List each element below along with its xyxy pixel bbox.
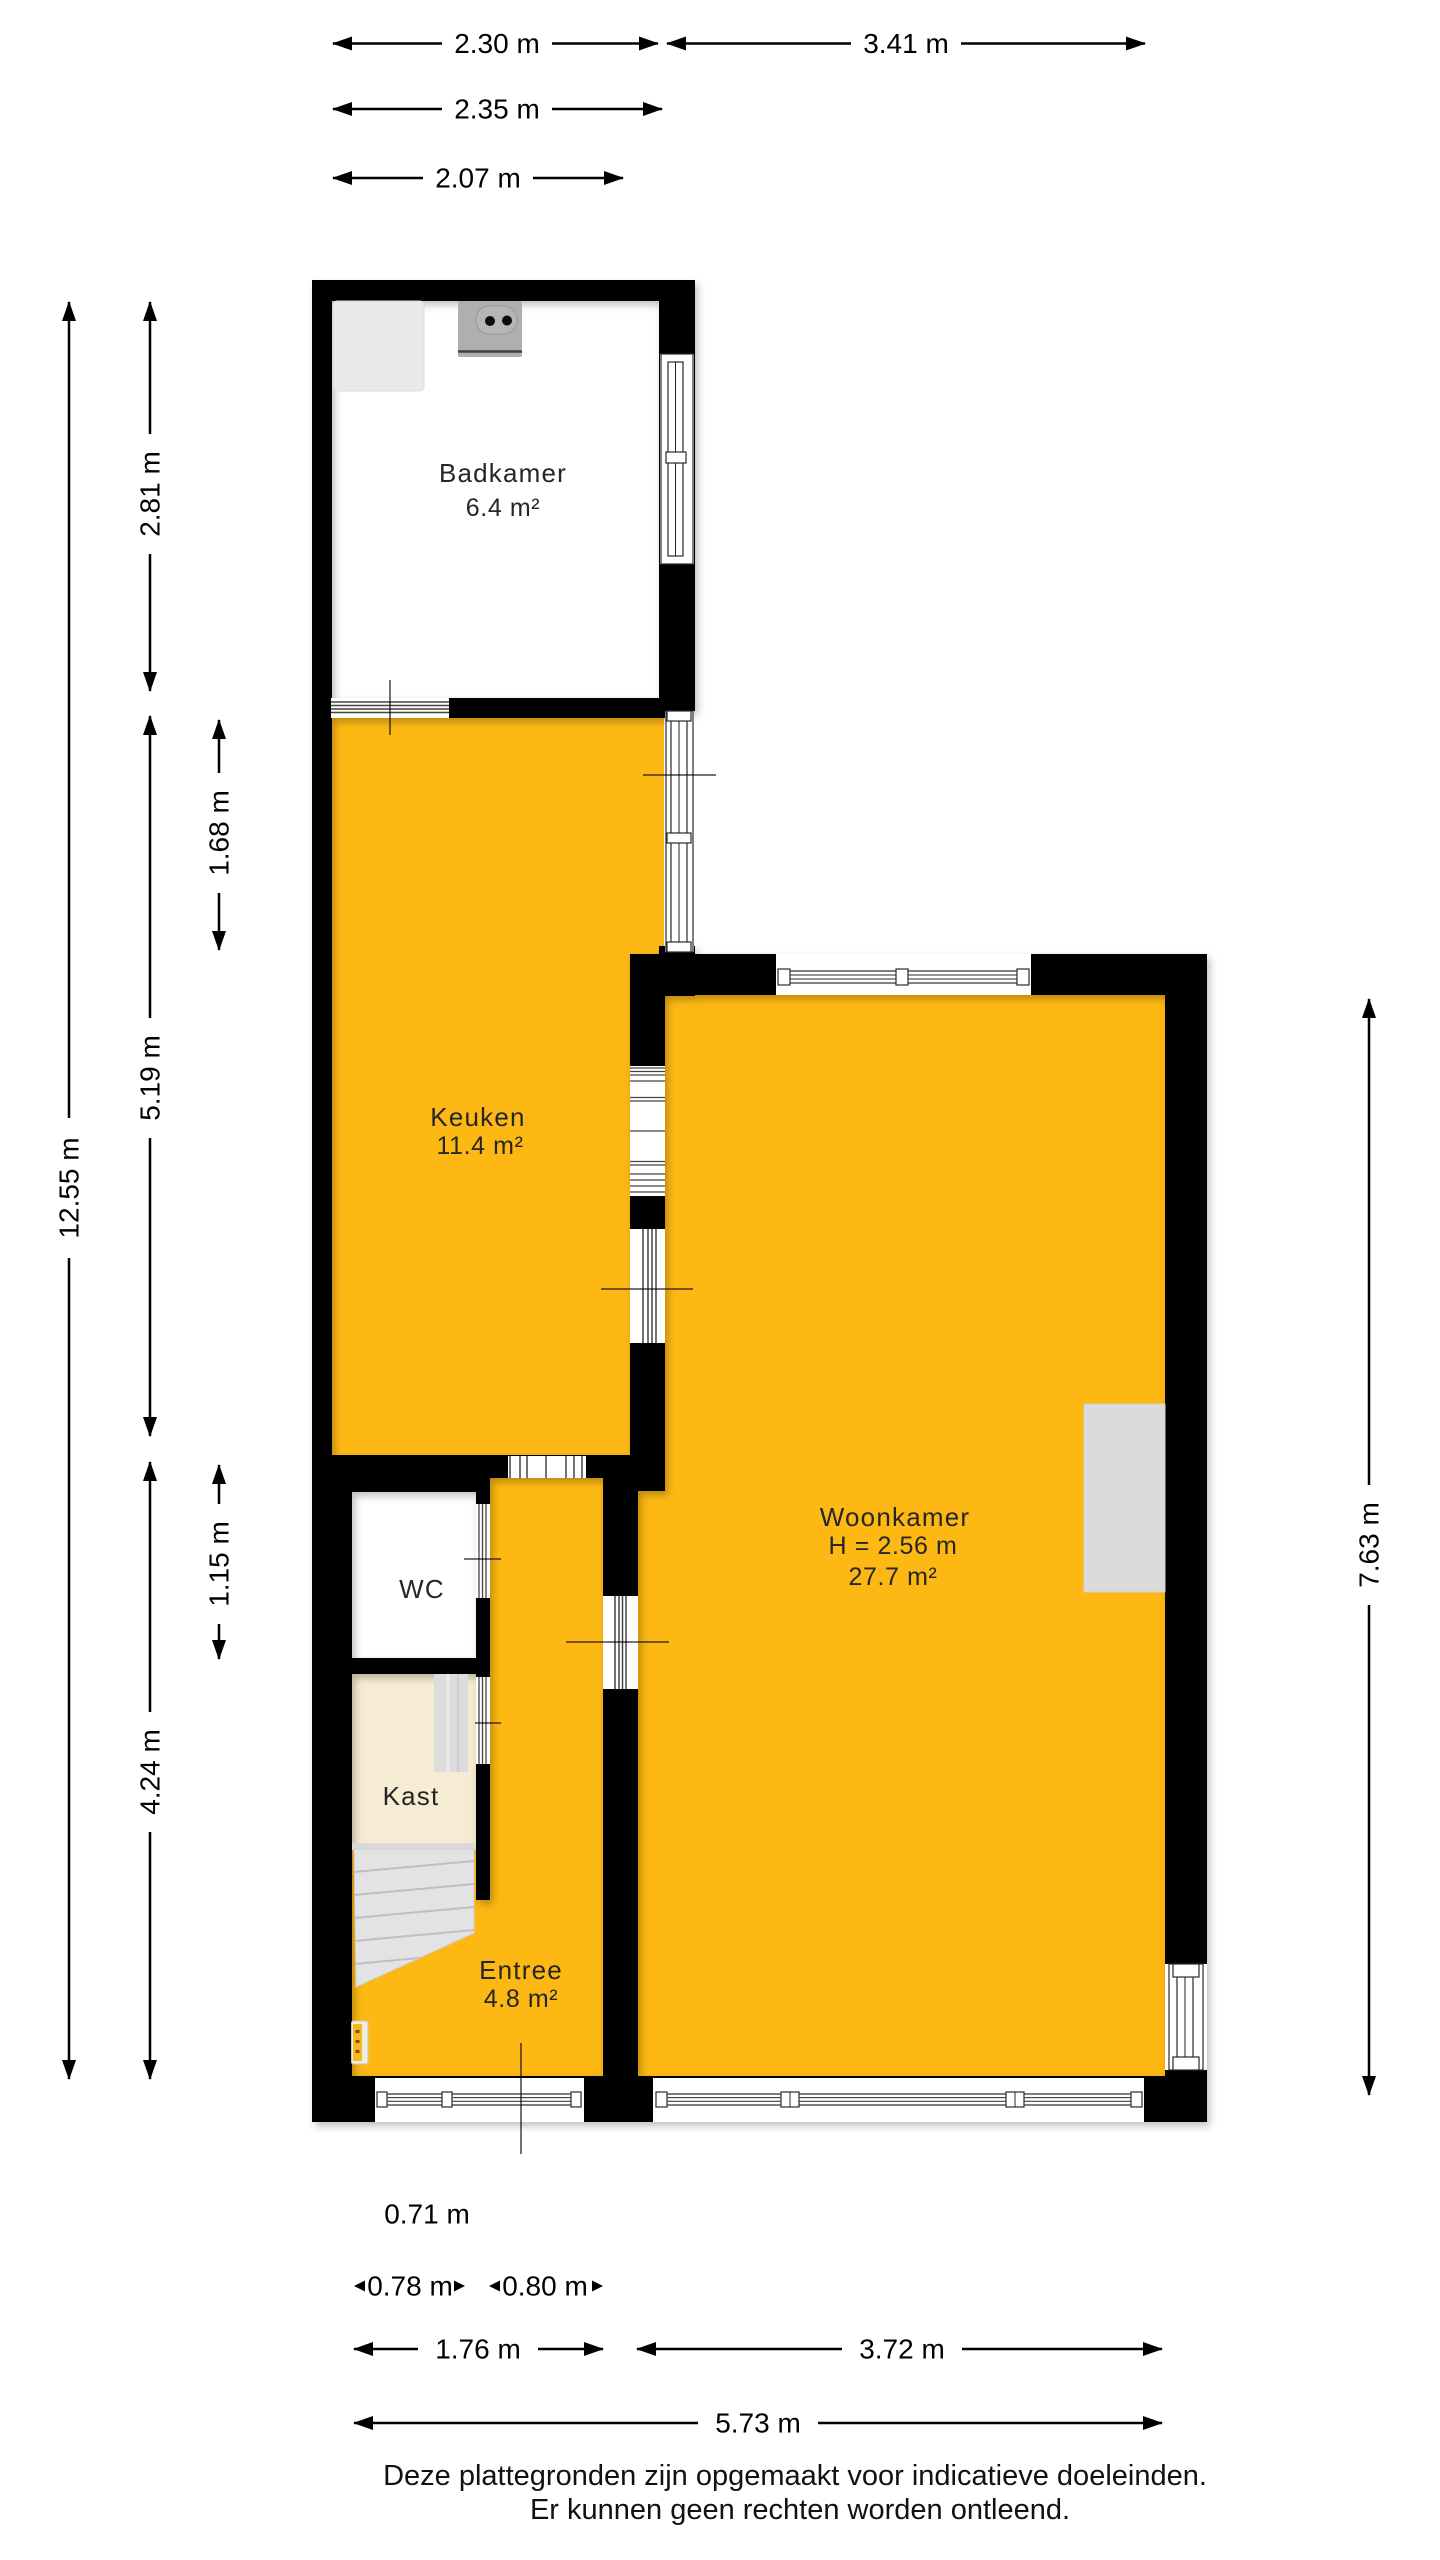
svg-text:1.15 m: 1.15 m bbox=[204, 1521, 235, 1607]
svg-text:12.55 m: 12.55 m bbox=[54, 1137, 85, 1238]
svg-text:2.30 m: 2.30 m bbox=[454, 28, 540, 59]
svg-text:3.72 m: 3.72 m bbox=[859, 2334, 945, 2365]
svg-text:5.19 m: 5.19 m bbox=[135, 1035, 166, 1121]
svg-text:1.76 m: 1.76 m bbox=[435, 2334, 521, 2365]
svg-text:4.8 m²: 4.8 m² bbox=[484, 1985, 558, 2013]
svg-text:Keuken: Keuken bbox=[430, 1102, 525, 1132]
svg-text:Entree: Entree bbox=[479, 1955, 563, 1985]
svg-text:27.7 m²: 27.7 m² bbox=[849, 1563, 938, 1591]
svg-text:Badkamer: Badkamer bbox=[439, 458, 567, 488]
svg-text:11.4 m²: 11.4 m² bbox=[436, 1132, 523, 1160]
svg-text:5.73 m: 5.73 m bbox=[715, 2408, 801, 2439]
svg-text:0.71 m: 0.71 m bbox=[384, 2199, 470, 2230]
svg-text:H = 2.56 m: H = 2.56 m bbox=[829, 1532, 958, 1560]
svg-text:0.78 m: 0.78 m bbox=[367, 2271, 453, 2302]
svg-text:Er kunnen geen rechten worden: Er kunnen geen rechten worden ontleend. bbox=[530, 2494, 1070, 2526]
svg-text:Woonkamer: Woonkamer bbox=[820, 1502, 971, 1532]
svg-text:7.63 m: 7.63 m bbox=[1354, 1502, 1385, 1588]
svg-text:Kast: Kast bbox=[383, 1781, 440, 1811]
svg-text:WC: WC bbox=[399, 1574, 445, 1604]
svg-text:0.80 m: 0.80 m bbox=[502, 2271, 588, 2302]
svg-text:1.68 m: 1.68 m bbox=[204, 790, 235, 876]
svg-text:2.07 m: 2.07 m bbox=[435, 163, 521, 194]
svg-text:4.24 m: 4.24 m bbox=[135, 1729, 166, 1815]
svg-text:6.4 m²: 6.4 m² bbox=[466, 494, 540, 522]
svg-text:Deze plattegronden zijn opgema: Deze plattegronden zijn opgemaakt voor i… bbox=[383, 2460, 1207, 2492]
svg-text:2.35 m: 2.35 m bbox=[454, 94, 540, 125]
svg-text:3.41 m: 3.41 m bbox=[863, 28, 949, 59]
svg-text:2.81 m: 2.81 m bbox=[135, 451, 166, 537]
